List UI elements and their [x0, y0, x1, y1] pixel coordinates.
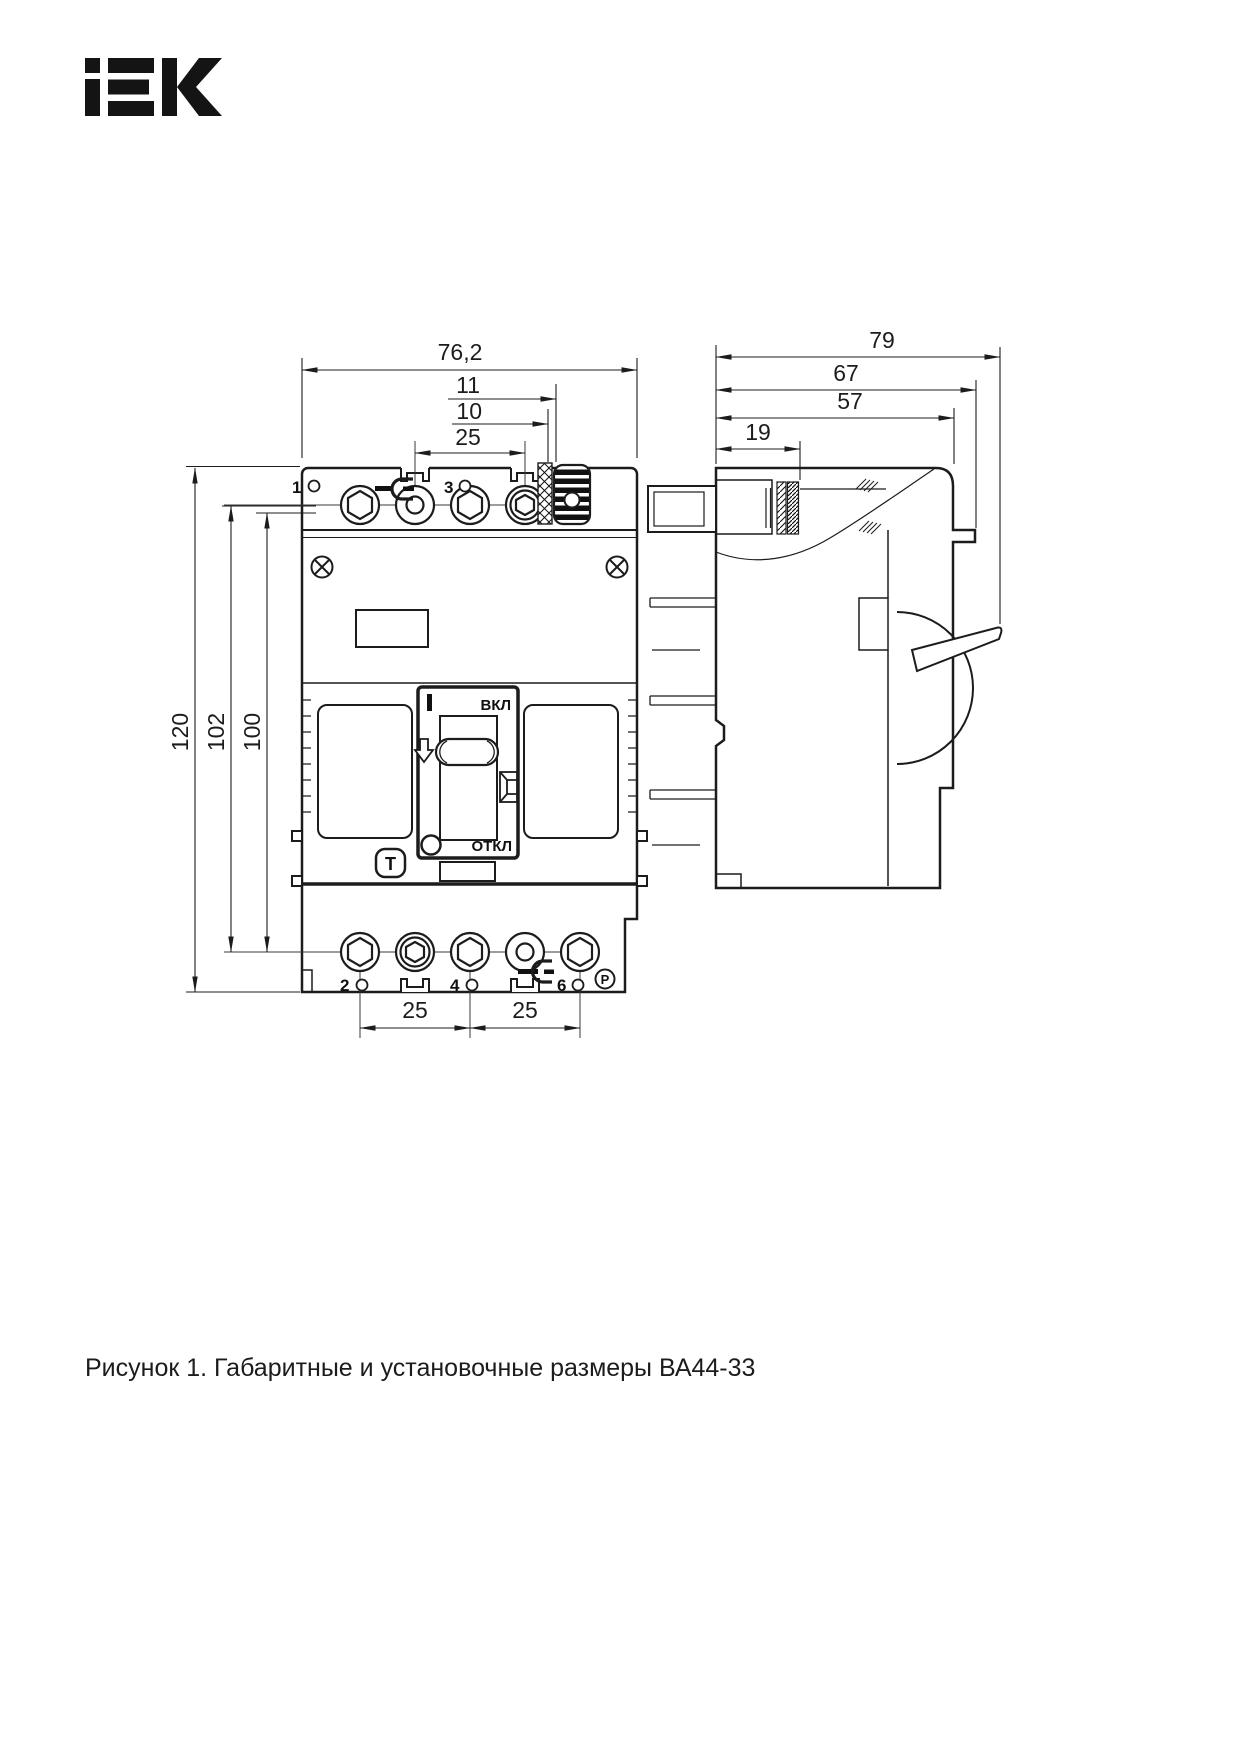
screw-hatch	[777, 482, 786, 534]
terminal-1-label: 1	[292, 478, 301, 497]
dim-57-label: 57	[837, 388, 863, 414]
on-label: ВКЛ	[480, 697, 511, 714]
logo-i-dot	[85, 58, 100, 73]
left-recess	[318, 705, 412, 838]
dim-102-label: 102	[203, 713, 229, 751]
pole-p-label: P	[601, 972, 610, 987]
dim-19-label: 19	[745, 419, 771, 445]
figure-caption: Рисунок 1. Габаритные и установочные раз…	[85, 1354, 755, 1382]
trip-test-button	[500, 772, 517, 802]
dimension-drawing-canvas: 1 3 ВКЛ ОТКЛ T 2 4 6 P 76,2 11	[0, 0, 1241, 1746]
terminal-2-label: 2	[340, 976, 349, 995]
off-label: ОТКЛ	[471, 838, 512, 855]
dim-pitch-top-label: 25	[455, 424, 481, 450]
small-label-window	[440, 862, 495, 881]
dim-79-label: 79	[869, 327, 895, 353]
terminal-4-label: 4	[450, 976, 460, 995]
side-view-dimension-labels: 79 67 57 19	[745, 327, 895, 445]
logo-k-lower-leg	[177, 87, 222, 116]
dim-pitch-b2-label: 25	[512, 997, 538, 1023]
knurl-strip	[538, 463, 552, 524]
test-button-label: T	[385, 854, 396, 874]
rating-label-window	[356, 610, 428, 647]
dim-width-label: 76,2	[438, 339, 483, 365]
cover-screw-left	[312, 557, 333, 578]
right-recess	[524, 705, 618, 838]
dim-10-label: 10	[456, 398, 482, 424]
dim-67-label: 67	[833, 360, 859, 386]
window-bump	[859, 598, 888, 650]
dial-mark	[565, 493, 580, 508]
left-face-clamps	[650, 598, 716, 845]
dim-100-label: 100	[239, 713, 265, 751]
reset-hole	[422, 836, 441, 855]
dim-120-label: 120	[167, 713, 193, 751]
toggle-well	[440, 716, 497, 840]
side-view-drawing	[648, 468, 1001, 888]
hex-bolt-icon	[348, 491, 372, 519]
technical-drawing-page: 1 3 ВКЛ ОТКЛ T 2 4 6 P 76,2 11	[0, 0, 1241, 1746]
logo-i-stem	[85, 79, 100, 116]
logo-e-bottom-bar	[108, 101, 154, 116]
cover-screw-right	[607, 557, 628, 578]
iek-logo	[85, 58, 222, 116]
screw-hatch	[788, 482, 799, 534]
dim-pitch-b1-label: 25	[402, 997, 428, 1023]
hex-bolt-icon	[458, 491, 482, 519]
front-view-drawing	[224, 441, 647, 1038]
adjustment-dial	[538, 463, 590, 524]
breaker-side-outline	[716, 468, 975, 888]
terminal-6-label: 6	[557, 976, 566, 995]
logo-k-stem	[162, 58, 177, 116]
logo-e-mid-bar	[108, 80, 149, 95]
logo-e-top-bar	[108, 58, 154, 73]
toggle-handle	[436, 739, 498, 765]
dim-11-label: 11	[456, 372, 480, 398]
logo-k-upper-leg	[177, 58, 222, 87]
toggle-on-mark	[427, 694, 432, 711]
terminal-3-label: 3	[444, 478, 453, 497]
